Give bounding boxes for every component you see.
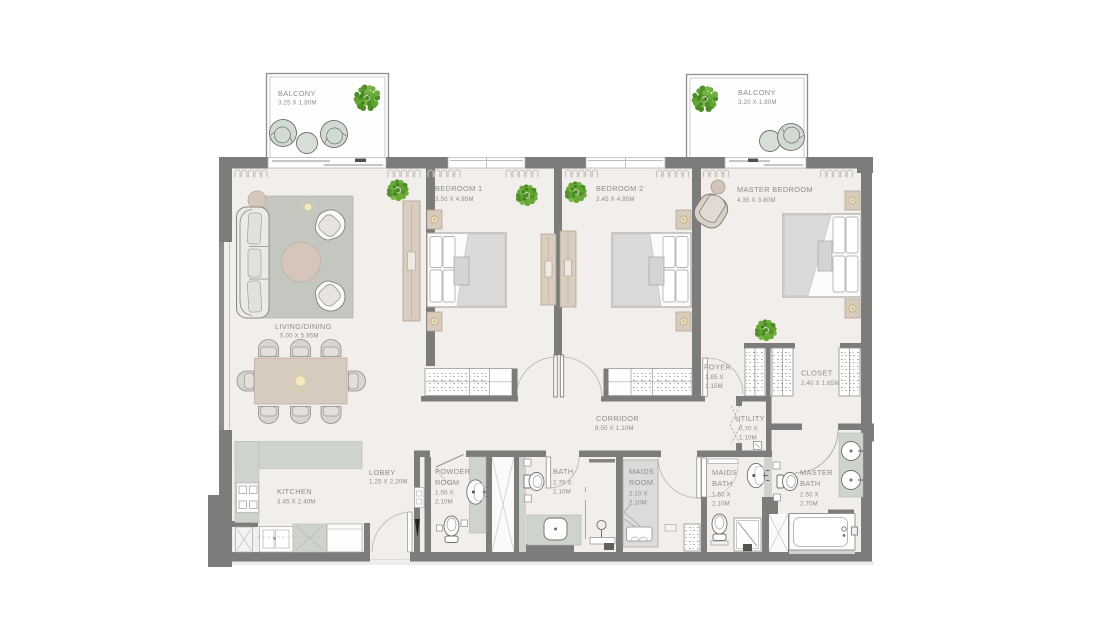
svg-text:ROOM: ROOM [435,478,459,487]
svg-text:3.45 X 4.95M: 3.45 X 4.95M [596,196,635,203]
svg-text:2.70 X: 2.70 X [553,480,572,487]
svg-text:MAIDS: MAIDS [629,467,654,476]
svg-text:BATH: BATH [553,467,574,476]
svg-text:BEDROOM 1: BEDROOM 1 [435,184,483,193]
svg-text:2.40 X 1.65M: 2.40 X 1.65M [801,380,840,387]
svg-text:2.50 X: 2.50 X [800,492,819,499]
svg-text:0.70 X: 0.70 X [739,426,758,433]
svg-text:LIVING/DINING: LIVING/DINING [275,322,332,331]
svg-text:4.35 X 3.80M: 4.35 X 3.80M [737,197,776,204]
svg-text:KITCHEN: KITCHEN [277,487,312,496]
svg-text:ROOM: ROOM [629,478,653,487]
svg-text:3.45 X 2.40M: 3.45 X 2.40M [277,499,316,506]
svg-text:1.50 X: 1.50 X [435,490,454,497]
svg-text:MAIDS: MAIDS [712,468,737,477]
svg-text:1.15M: 1.15M [705,383,723,390]
svg-text:2.10 X: 2.10 X [629,491,648,498]
svg-text:2.10M: 2.10M [712,501,730,508]
svg-text:3.50 X 4.95M: 3.50 X 4.95M [435,196,474,203]
svg-text:POWDER: POWDER [435,467,470,476]
svg-text:2.10M: 2.10M [553,489,571,496]
svg-text:BATH: BATH [800,479,821,488]
svg-text:5.00 X 5.95M: 5.00 X 5.95M [280,333,319,340]
svg-text:MASTER BEDROOM: MASTER BEDROOM [737,185,813,194]
svg-text:2.10M: 2.10M [629,500,647,507]
svg-text:3.25 X 1.80M: 3.25 X 1.80M [278,100,317,107]
svg-text:1.25 X 2.20M: 1.25 X 2.20M [369,479,408,486]
svg-text:1.50 X: 1.50 X [712,492,731,499]
svg-text:BALCONY: BALCONY [278,89,316,98]
svg-text:8.50 X 1.10M: 8.50 X 1.10M [595,425,634,432]
svg-text:MASTER: MASTER [800,468,833,477]
svg-text:FOYER: FOYER [704,363,731,372]
svg-text:CLOSET: CLOSET [801,369,833,378]
svg-text:LOBBY: LOBBY [369,468,395,477]
svg-text:2.10M: 2.10M [435,499,453,506]
svg-text:BATH: BATH [712,479,733,488]
svg-text:3.20 X 1.80M: 3.20 X 1.80M [738,99,777,106]
svg-text:BALCONY: BALCONY [738,88,776,97]
svg-text:BEDROOM 2: BEDROOM 2 [596,184,644,193]
svg-text:1.10M: 1.10M [739,435,757,442]
svg-text:UTILITY: UTILITY [735,414,765,423]
svg-text:2.70M: 2.70M [800,501,818,508]
svg-text:1.85 X: 1.85 X [705,374,724,381]
svg-text:CORRIDOR: CORRIDOR [596,414,639,423]
